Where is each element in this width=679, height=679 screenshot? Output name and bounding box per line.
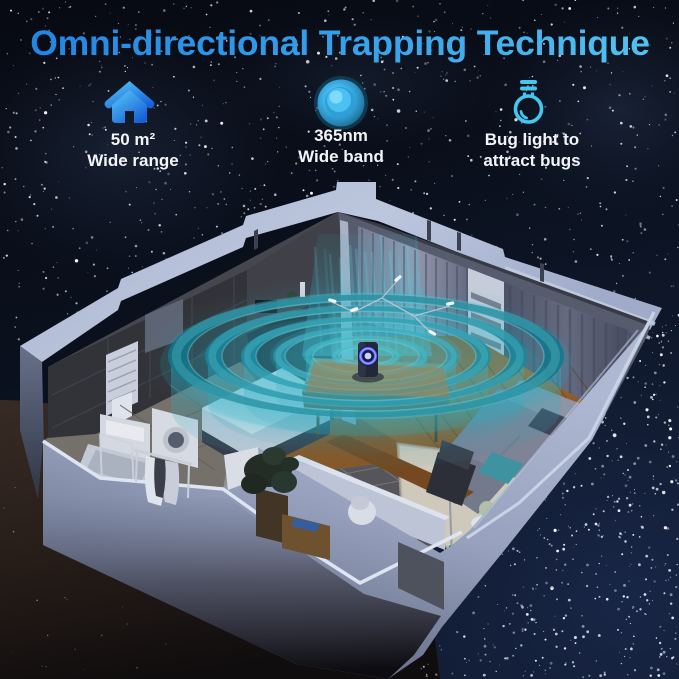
svg-text:Bug light to: Bug light to [485, 130, 579, 149]
svg-text:365nm: 365nm [314, 126, 368, 145]
svg-text:50 m²: 50 m² [111, 130, 156, 149]
svg-text:Wide band: Wide band [298, 147, 384, 166]
svg-text:attract bugs: attract bugs [483, 151, 580, 170]
svg-text:Omni-directional Trapping Tech: Omni-directional Trapping Technique [30, 23, 650, 63]
svg-text:Wide range: Wide range [87, 151, 178, 170]
